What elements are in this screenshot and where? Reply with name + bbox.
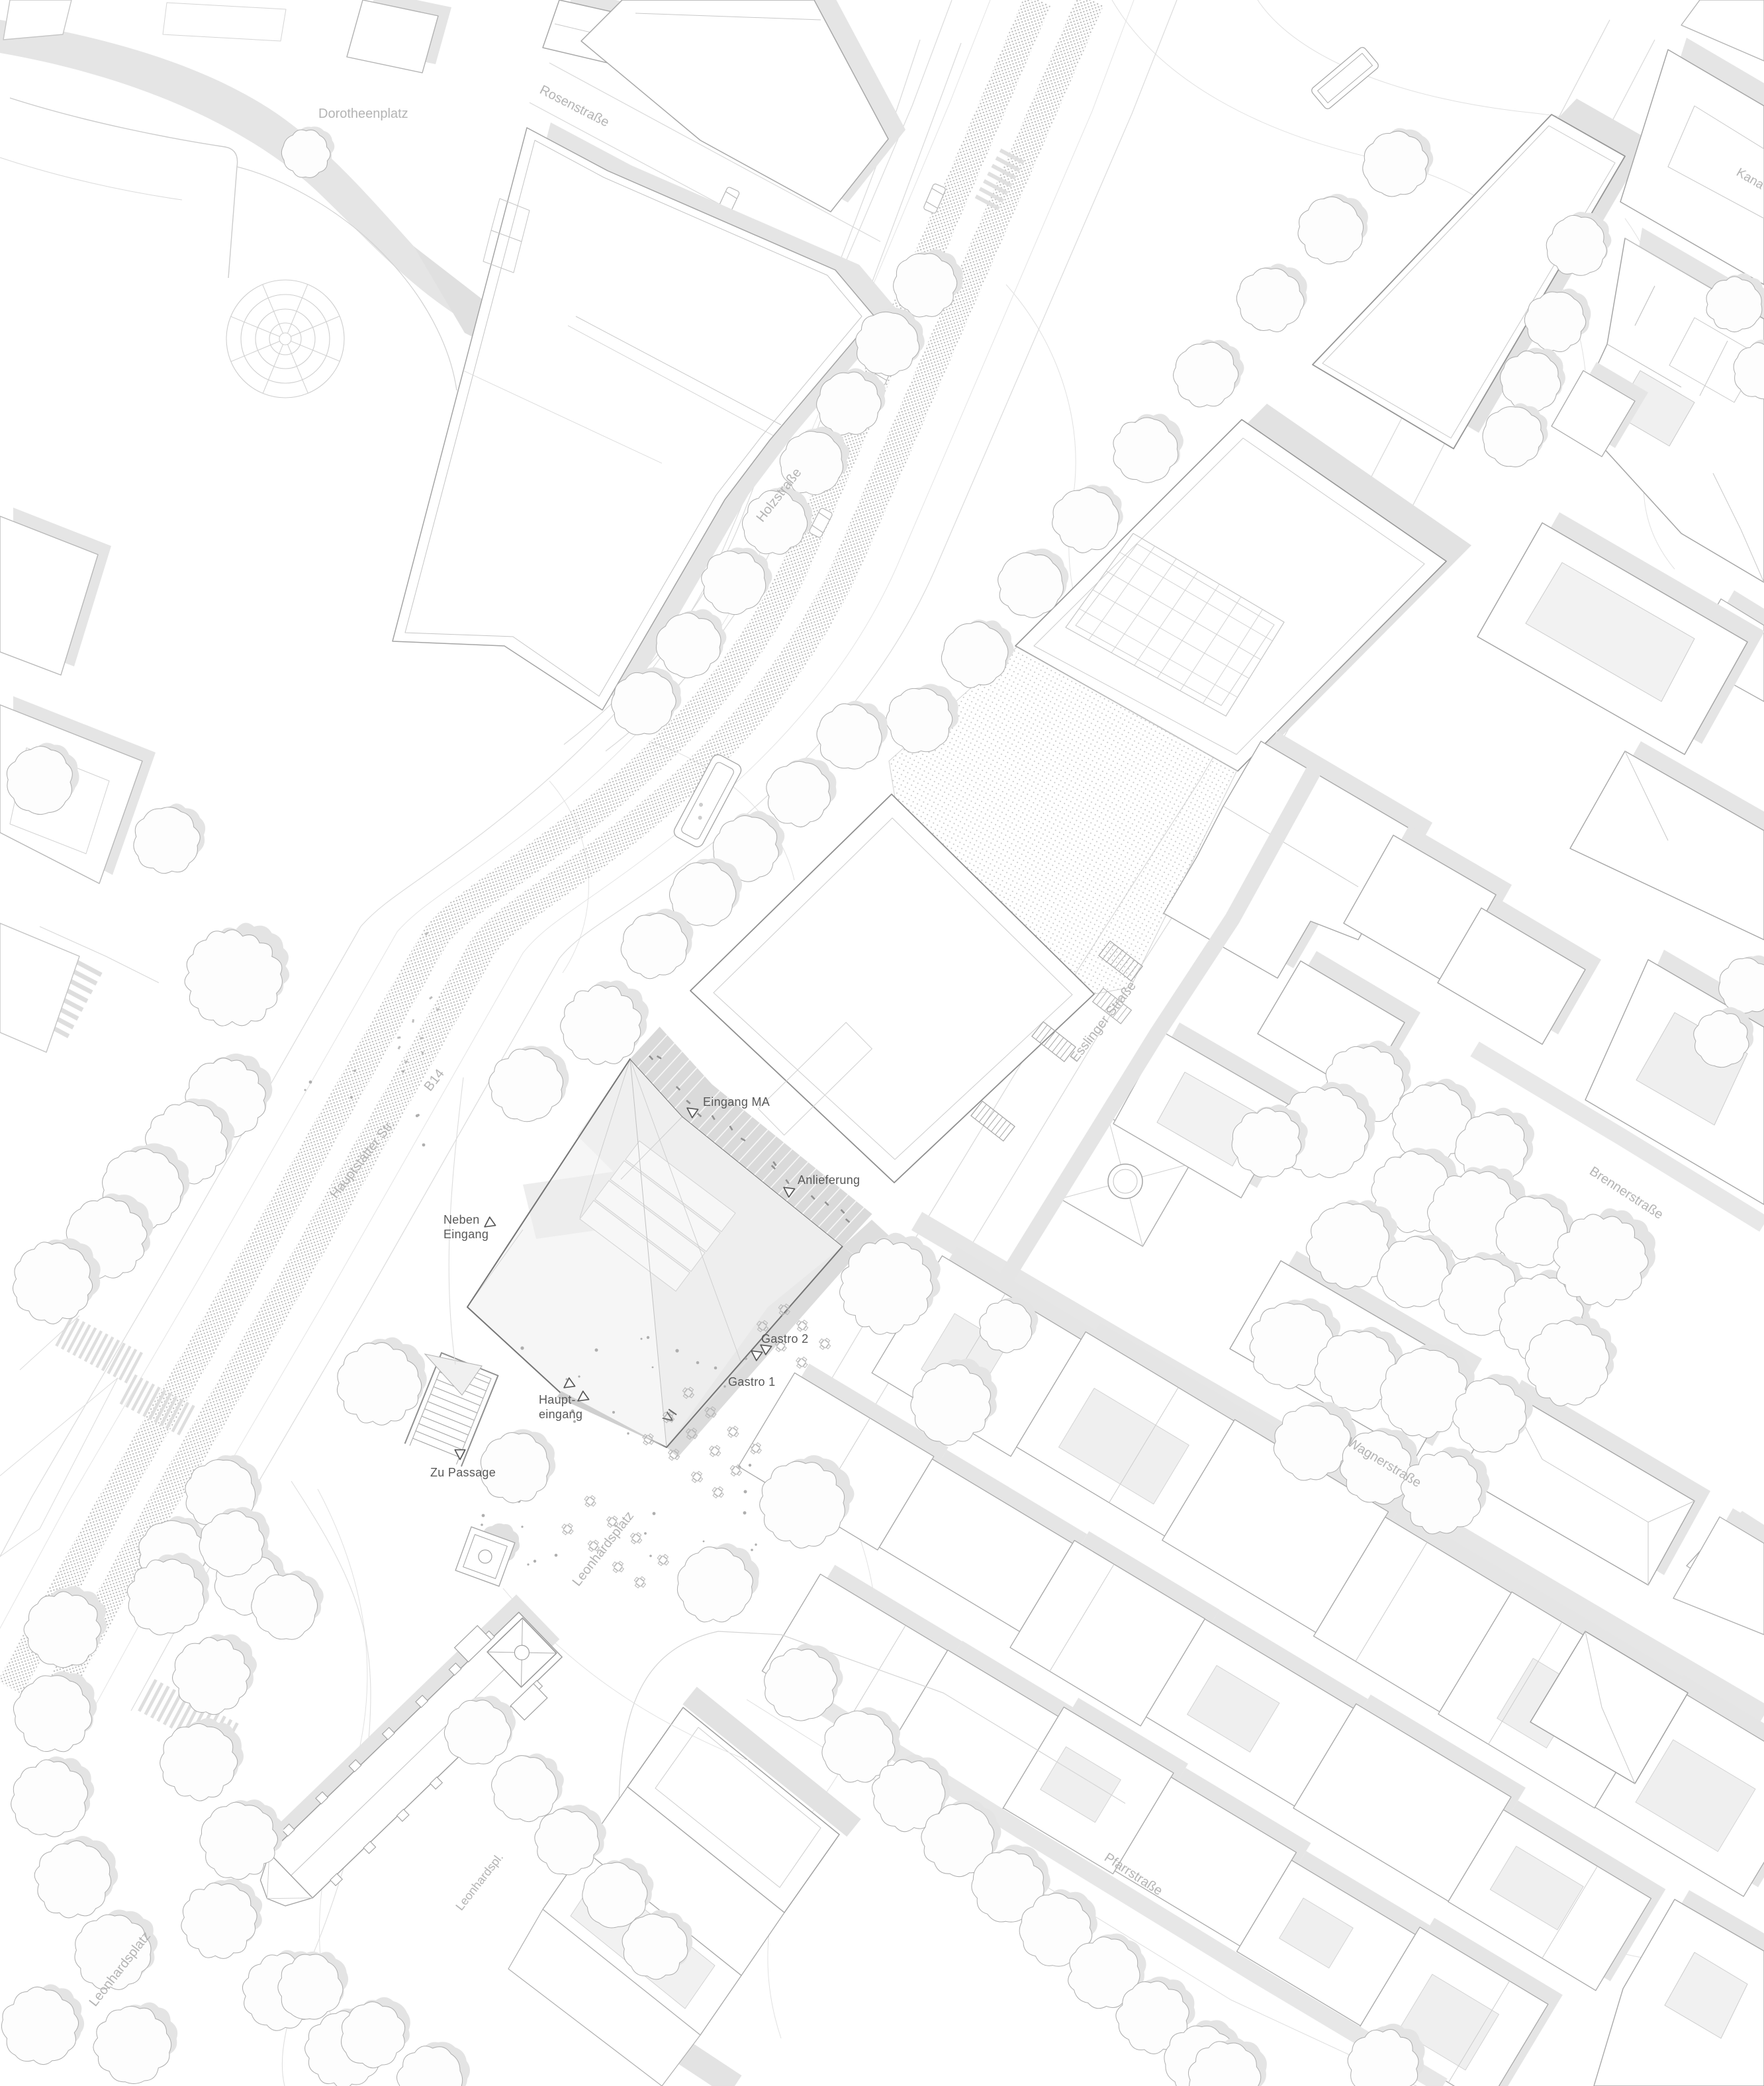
svg-text:Eingang: Eingang [443, 1228, 488, 1241]
svg-text:Eingang MA: Eingang MA [703, 1095, 770, 1109]
svg-text:Anlieferung: Anlieferung [798, 1173, 860, 1187]
svg-text:Haupt-: Haupt- [539, 1393, 576, 1406]
svg-text:Dorotheenplatz: Dorotheenplatz [318, 107, 408, 121]
svg-text:Neben: Neben [443, 1213, 480, 1226]
svg-text:eingang: eingang [539, 1408, 582, 1421]
svg-text:Gastro 2: Gastro 2 [761, 1332, 808, 1345]
svg-text:Gastro 1: Gastro 1 [728, 1375, 775, 1388]
svg-text:Zu Passage: Zu Passage [430, 1466, 496, 1479]
